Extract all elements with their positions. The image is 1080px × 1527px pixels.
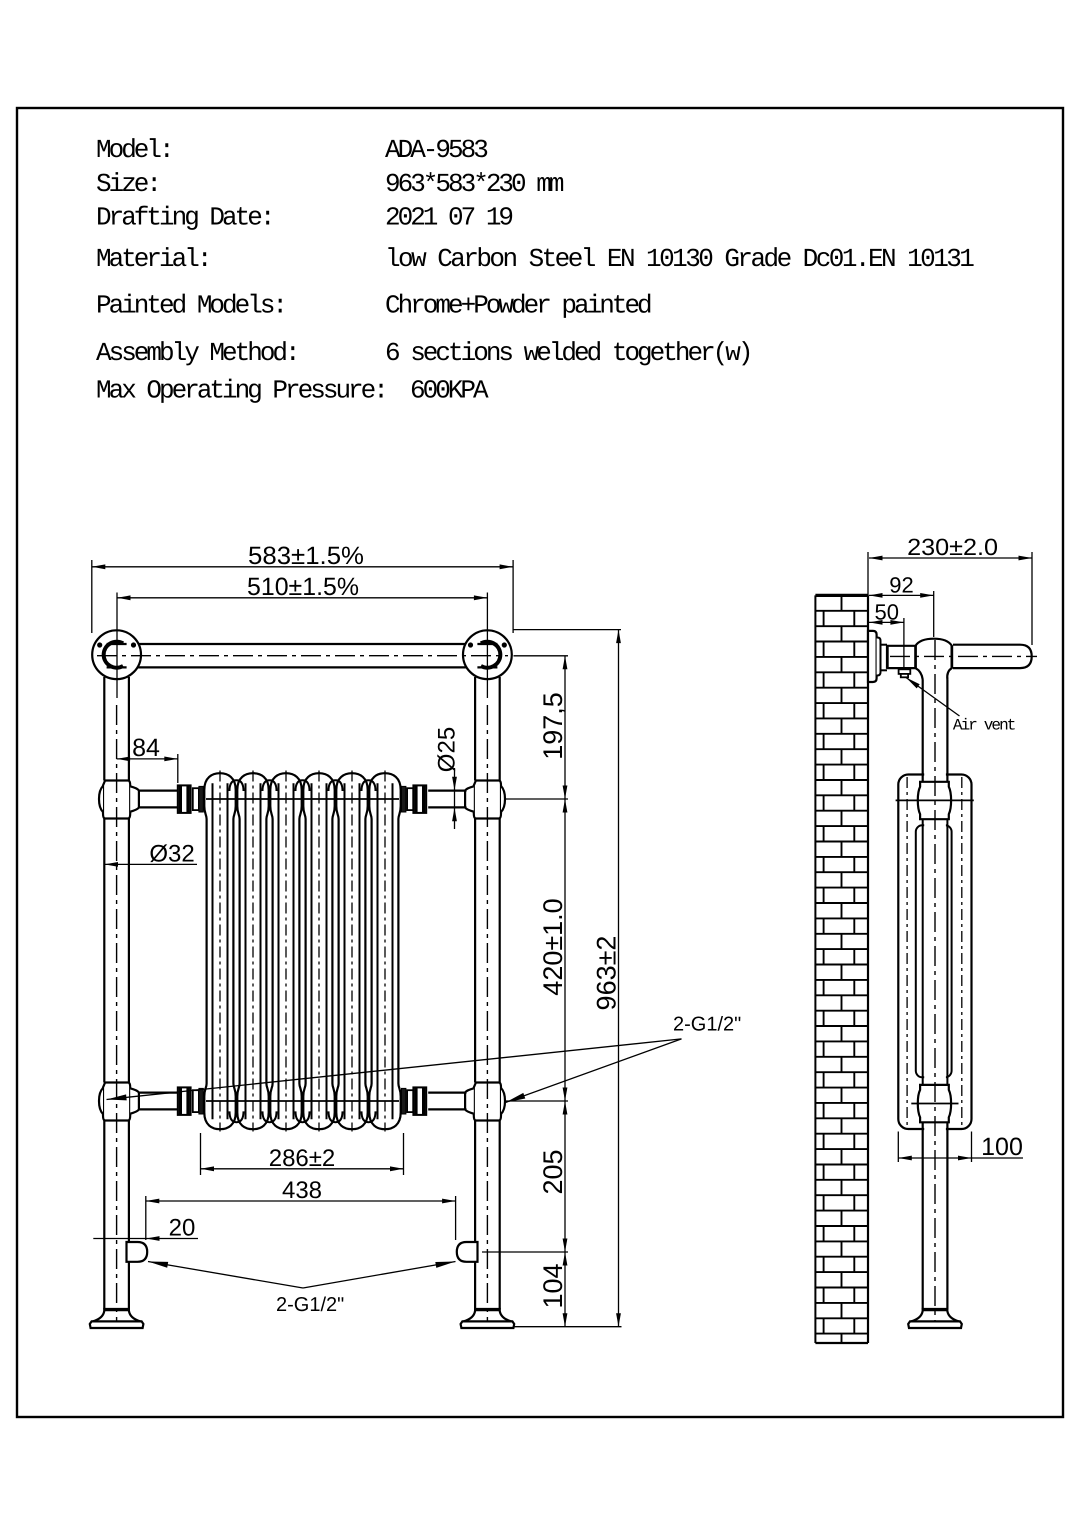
svg-text:Model:: Model: — [96, 135, 172, 165]
svg-text:Ø32: Ø32 — [149, 840, 194, 867]
svg-text:Chrome+Powder painted: Chrome+Powder painted — [385, 291, 651, 321]
svg-text:104: 104 — [538, 1263, 568, 1308]
svg-text:92: 92 — [889, 572, 913, 597]
svg-text:438: 438 — [282, 1177, 322, 1204]
svg-text:583±1.5%: 583±1.5% — [248, 542, 364, 570]
svg-text:963*583*230 mm: 963*583*230 mm — [385, 169, 564, 199]
svg-text:Ø25: Ø25 — [434, 727, 461, 772]
svg-text:197,5: 197,5 — [538, 692, 568, 760]
svg-text:Size:: Size: — [96, 169, 159, 199]
svg-text:Assembly Method:: Assembly Method: — [96, 338, 298, 368]
svg-text:20: 20 — [169, 1215, 196, 1242]
svg-text:84: 84 — [132, 734, 160, 762]
svg-text:2-G1/2": 2-G1/2" — [276, 1294, 344, 1316]
svg-text:low Carbon Steel EN 10130 Gra: low Carbon Steel EN 10130 Grade Dc01.EN … — [385, 244, 974, 274]
svg-text:420±1.0: 420±1.0 — [538, 898, 568, 995]
svg-text:963±2: 963±2 — [592, 936, 622, 1011]
svg-text:Painted Models:: Painted Models: — [96, 291, 285, 321]
svg-text:286±2: 286±2 — [269, 1145, 336, 1172]
svg-text:2021 07 19: 2021 07 19 — [385, 203, 512, 233]
svg-text:2-G1/2": 2-G1/2" — [673, 1014, 741, 1036]
svg-text:100: 100 — [981, 1133, 1023, 1161]
svg-text:Max Operating Pressure:: Max Operating Pressure: — [96, 376, 386, 406]
svg-text:230±2.0: 230±2.0 — [907, 534, 998, 560]
svg-text:510±1.5%: 510±1.5% — [247, 573, 359, 601]
svg-text:Air vent: Air vent — [953, 717, 1015, 735]
svg-text:ADA-9583: ADA-9583 — [385, 135, 487, 165]
svg-text:205: 205 — [538, 1149, 568, 1194]
svg-text:Material:: Material: — [96, 244, 209, 274]
svg-text:6 sections welded together(w): 6 sections welded together(w) — [385, 338, 750, 368]
svg-text:Drafting Date:: Drafting Date: — [96, 203, 272, 233]
svg-text:600KPA: 600KPA — [410, 376, 489, 406]
svg-text:50: 50 — [875, 599, 899, 624]
